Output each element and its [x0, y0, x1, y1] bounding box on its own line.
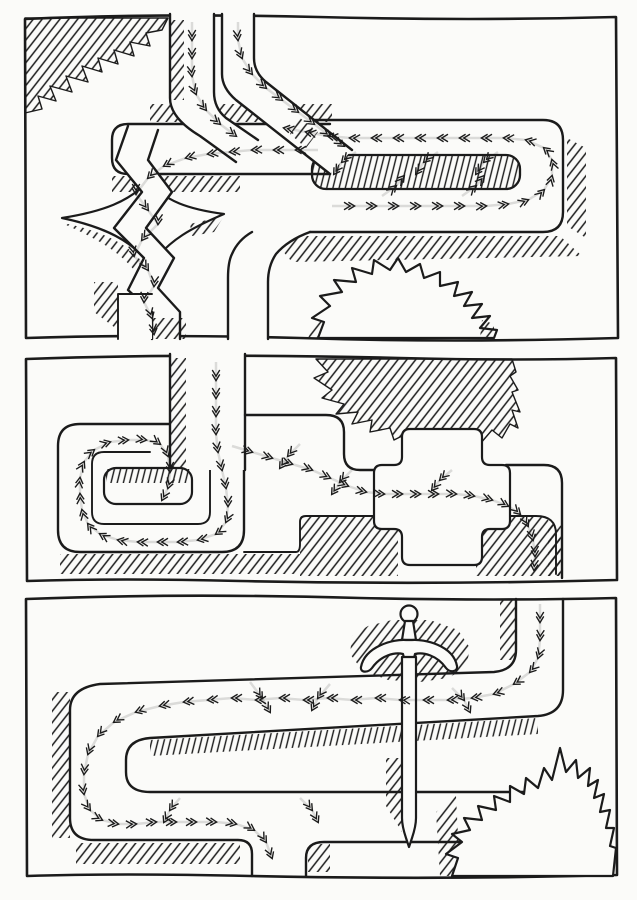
hatch-shadow	[500, 600, 516, 660]
hatch-shadow	[52, 692, 70, 838]
hatch-shadow	[170, 358, 186, 468]
hatch-shadow	[152, 318, 186, 339]
arrow-trail	[300, 798, 318, 822]
hatch-shadow	[170, 20, 184, 100]
hatch-shadow	[60, 554, 300, 574]
hatch-shadow	[76, 843, 240, 864]
sword-blade	[402, 657, 416, 847]
comic-page	[0, 0, 637, 900]
panel-2	[26, 354, 617, 583]
burst-shape	[25, 18, 168, 113]
hatch-shadow	[548, 522, 562, 576]
corridor	[118, 294, 152, 339]
panel-1	[25, 14, 618, 341]
hatch-shadow	[480, 320, 494, 338]
arrow-trail	[164, 798, 180, 822]
sword-grip	[402, 621, 416, 640]
hatch-shadow	[386, 758, 402, 832]
panel-3	[26, 596, 617, 878]
comic-art	[0, 0, 637, 900]
hatch-shadow	[94, 282, 118, 330]
hatch-shadow	[270, 236, 582, 262]
island-bar-top	[106, 469, 190, 483]
island-bar-top	[150, 718, 538, 756]
burst-shape	[446, 748, 616, 876]
hatch-shadow	[308, 844, 330, 872]
burst-shape	[312, 258, 497, 338]
arrow-trail	[250, 682, 270, 712]
hatch-shadow	[567, 138, 586, 238]
maze-walls	[126, 599, 563, 792]
